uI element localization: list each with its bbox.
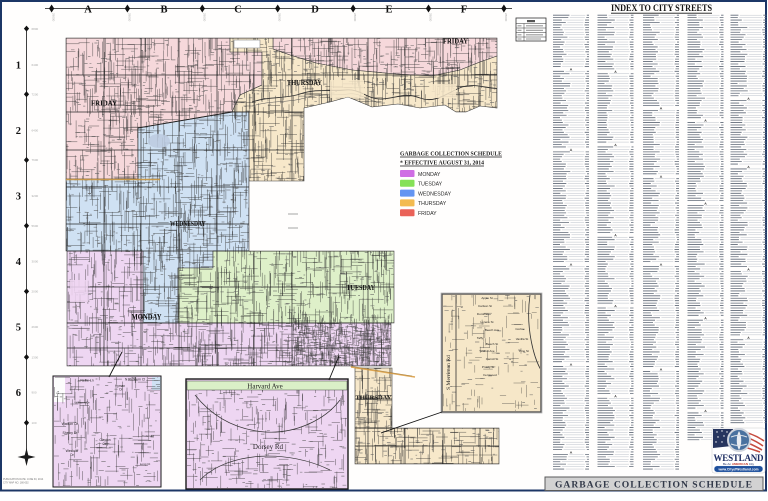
svg-text:Dorsey Rd: Dorsey Rd xyxy=(253,443,284,451)
svg-text:Lorene St: Lorene St xyxy=(480,320,493,324)
svg-text:Carroll St: Carroll St xyxy=(486,357,499,361)
svg-text:F: F xyxy=(461,5,467,16)
svg-text:Vanilla St: Vanilla St xyxy=(516,337,529,341)
svg-text:TUESDAY: TUESDAY xyxy=(418,182,443,188)
svg-text:1300: 1300 xyxy=(32,355,39,359)
svg-text:Long Ct: Long Ct xyxy=(140,462,151,466)
svg-text:Williams Dr: Williams Dr xyxy=(74,401,89,405)
svg-text:6800: 6800 xyxy=(32,27,39,31)
svg-text:28000: 28000 xyxy=(278,13,282,22)
svg-text:CITY MAP NO. 180-002: CITY MAP NO. 180-002 xyxy=(3,481,29,484)
svg-text:28000: 28000 xyxy=(52,13,56,22)
svg-text:5600: 5600 xyxy=(32,224,39,228)
svg-text:3200: 3200 xyxy=(32,194,39,198)
svg-text:THURSDAY: THURSDAY xyxy=(356,395,392,402)
svg-text:Dorothey: Dorothey xyxy=(477,312,490,316)
svg-text:Nellie Ln: Nellie Ln xyxy=(80,379,93,383)
svg-text:D: D xyxy=(311,5,319,16)
svg-text:28000: 28000 xyxy=(127,13,131,22)
svg-text:28000: 28000 xyxy=(504,13,508,22)
svg-text:6400: 6400 xyxy=(32,63,39,67)
svg-text:GARBAGE COLLECTION SCHEDULE: GARBAGE COLLECTION SCHEDULE xyxy=(555,479,753,490)
svg-text:MONDAY: MONDAY xyxy=(418,172,441,178)
svg-text:Fernwood: Fernwood xyxy=(483,373,497,377)
svg-text:Cozine: Cozine xyxy=(515,327,525,331)
svg-text:Shelby Dr: Shelby Dr xyxy=(63,431,79,435)
svg-text:900: 900 xyxy=(32,391,37,395)
svg-text:Harvard Ave: Harvard Ave xyxy=(247,383,282,391)
svg-text:2: 2 xyxy=(16,126,21,137)
svg-text:6400: 6400 xyxy=(32,129,39,133)
svg-text:WEDNESDAY: WEDNESDAY xyxy=(418,191,452,197)
svg-text:C: C xyxy=(234,5,242,16)
svg-text:Watson Cir: Watson Cir xyxy=(62,422,80,426)
svg-text:S Merriman Rd: S Merriman Rd xyxy=(446,355,452,390)
svg-text:2600: 2600 xyxy=(32,325,39,329)
svg-text:1: 1 xyxy=(16,61,21,72)
svg-text:MONDAY: MONDAY xyxy=(132,313,162,322)
svg-text:A: A xyxy=(84,5,92,16)
svg-text:Ct: Ct xyxy=(102,442,105,446)
svg-text:28000: 28000 xyxy=(429,13,433,22)
svg-text:Taffy: Taffy xyxy=(477,336,484,340)
svg-text:N Richburn Ct: N Richburn Ct xyxy=(125,378,145,382)
svg-text:Be An AMERICAN City: Be An AMERICAN City xyxy=(723,462,755,466)
svg-text:TUESDAY: TUESDAY xyxy=(347,283,376,292)
svg-text:5: 5 xyxy=(16,323,21,334)
svg-text:Beech Ave: Beech Ave xyxy=(485,328,500,332)
svg-text:100: 100 xyxy=(32,421,37,425)
svg-text:2000: 2000 xyxy=(32,290,39,294)
svg-text:Beech St: Beech St xyxy=(486,342,498,346)
svg-text:4: 4 xyxy=(16,257,22,268)
svg-text:Pine St: Pine St xyxy=(519,349,529,353)
svg-text:WEDNESDAY: WEDNESDAY xyxy=(170,219,206,228)
svg-text:THURSDAY: THURSDAY xyxy=(287,80,322,87)
svg-text:www.CityofWestland.com: www.CityofWestland.com xyxy=(717,468,758,472)
svg-text:28000: 28000 xyxy=(353,13,357,22)
svg-text:6: 6 xyxy=(16,388,21,399)
svg-text:Apple St: Apple St xyxy=(481,296,493,300)
svg-text:3: 3 xyxy=(16,192,21,203)
svg-text:FRIDAY: FRIDAY xyxy=(418,211,437,217)
svg-text:GARBAGE COLLECTION SCHEDULE: GARBAGE COLLECTION SCHEDULE xyxy=(400,151,503,158)
svg-text:Kalamaz: Kalamaz xyxy=(142,434,154,438)
svg-text:B: B xyxy=(160,5,167,16)
svg-text:28000: 28000 xyxy=(202,13,206,22)
svg-text:INDEX TO CITY STREETS: INDEX TO CITY STREETS xyxy=(611,3,712,13)
svg-text:E: E xyxy=(385,5,392,16)
svg-text:FRIDAY: FRIDAY xyxy=(443,38,469,46)
svg-text:Prouty St: Prouty St xyxy=(482,365,495,369)
svg-text:FRIDAY: FRIDAY xyxy=(91,100,118,108)
svg-text:Walnut Ave: Walnut Ave xyxy=(479,349,494,353)
svg-text:Carlson St: Carlson St xyxy=(478,304,492,308)
svg-text:* EFFECTIVE AUGUST 31, 2014: * EFFECTIVE AUGUST 31, 2014 xyxy=(400,160,484,167)
svg-text:3000: 3000 xyxy=(32,260,39,264)
svg-text:THURSDAY: THURSDAY xyxy=(418,201,447,207)
svg-text:7200: 7200 xyxy=(32,93,39,97)
svg-text:7600: 7600 xyxy=(32,158,39,162)
